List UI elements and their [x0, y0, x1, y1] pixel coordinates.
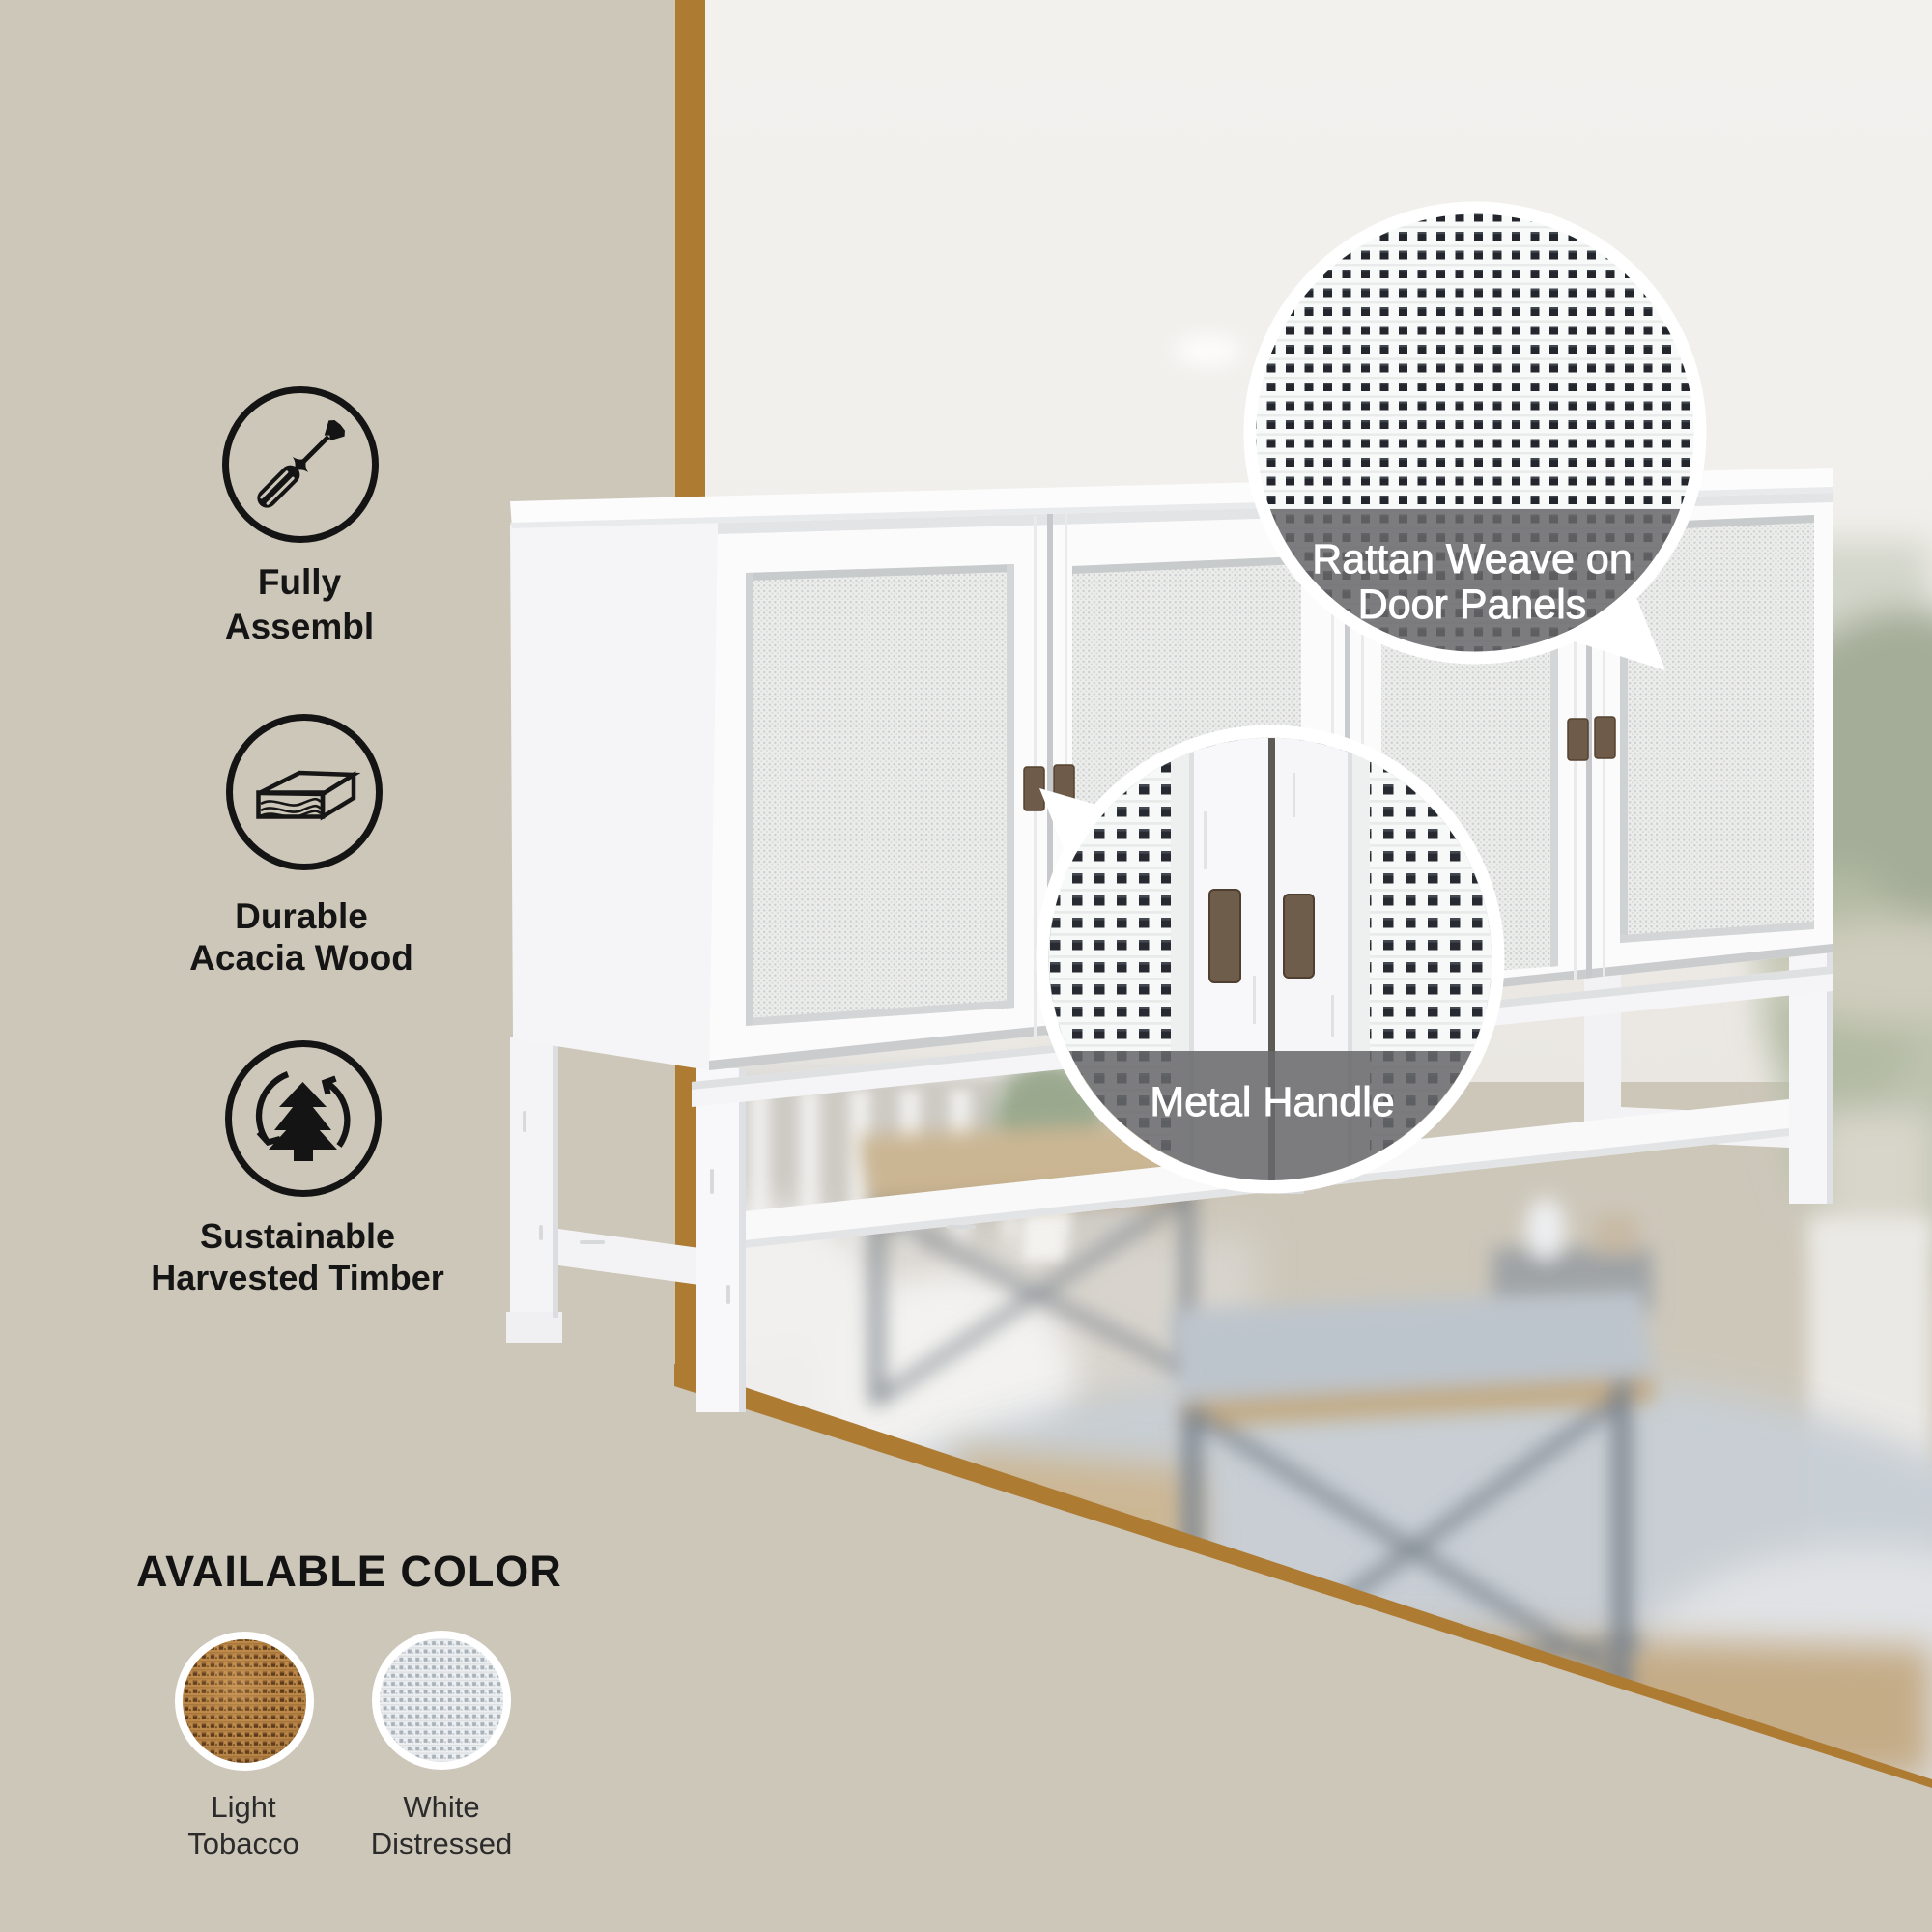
svg-text:Door Panels: Door Panels — [1358, 582, 1587, 628]
svg-text:Durable: Durable — [235, 896, 368, 936]
svg-text:Acacia Wood: Acacia Wood — [189, 938, 413, 978]
svg-text:Rattan Weave on: Rattan Weave on — [1312, 536, 1632, 582]
svg-text:Harvested Timber: Harvested Timber — [151, 1258, 443, 1297]
svg-text:Metal Handle: Metal Handle — [1150, 1079, 1394, 1125]
svg-text:White: White — [403, 1790, 479, 1824]
svg-text:Distressed: Distressed — [371, 1827, 512, 1861]
svg-text:Light: Light — [211, 1790, 276, 1824]
svg-text:Sustainable: Sustainable — [200, 1216, 395, 1256]
svg-text:Fully: Fully — [258, 562, 342, 602]
svg-text:Tobacco: Tobacco — [187, 1827, 298, 1861]
svg-text:Assembl: Assembl — [225, 607, 374, 646]
svg-text:AVAILABLE COLOR: AVAILABLE COLOR — [136, 1547, 562, 1596]
